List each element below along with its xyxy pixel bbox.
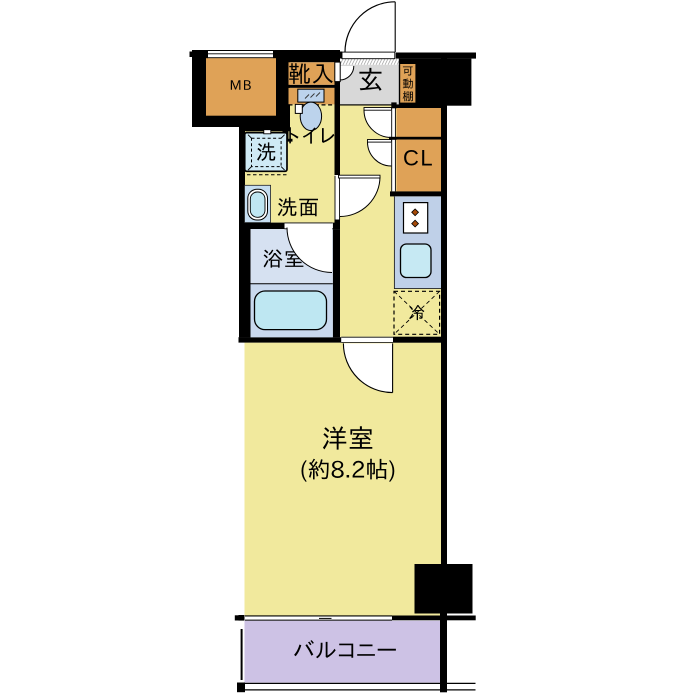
svg-text:CL: CL <box>403 146 434 171</box>
